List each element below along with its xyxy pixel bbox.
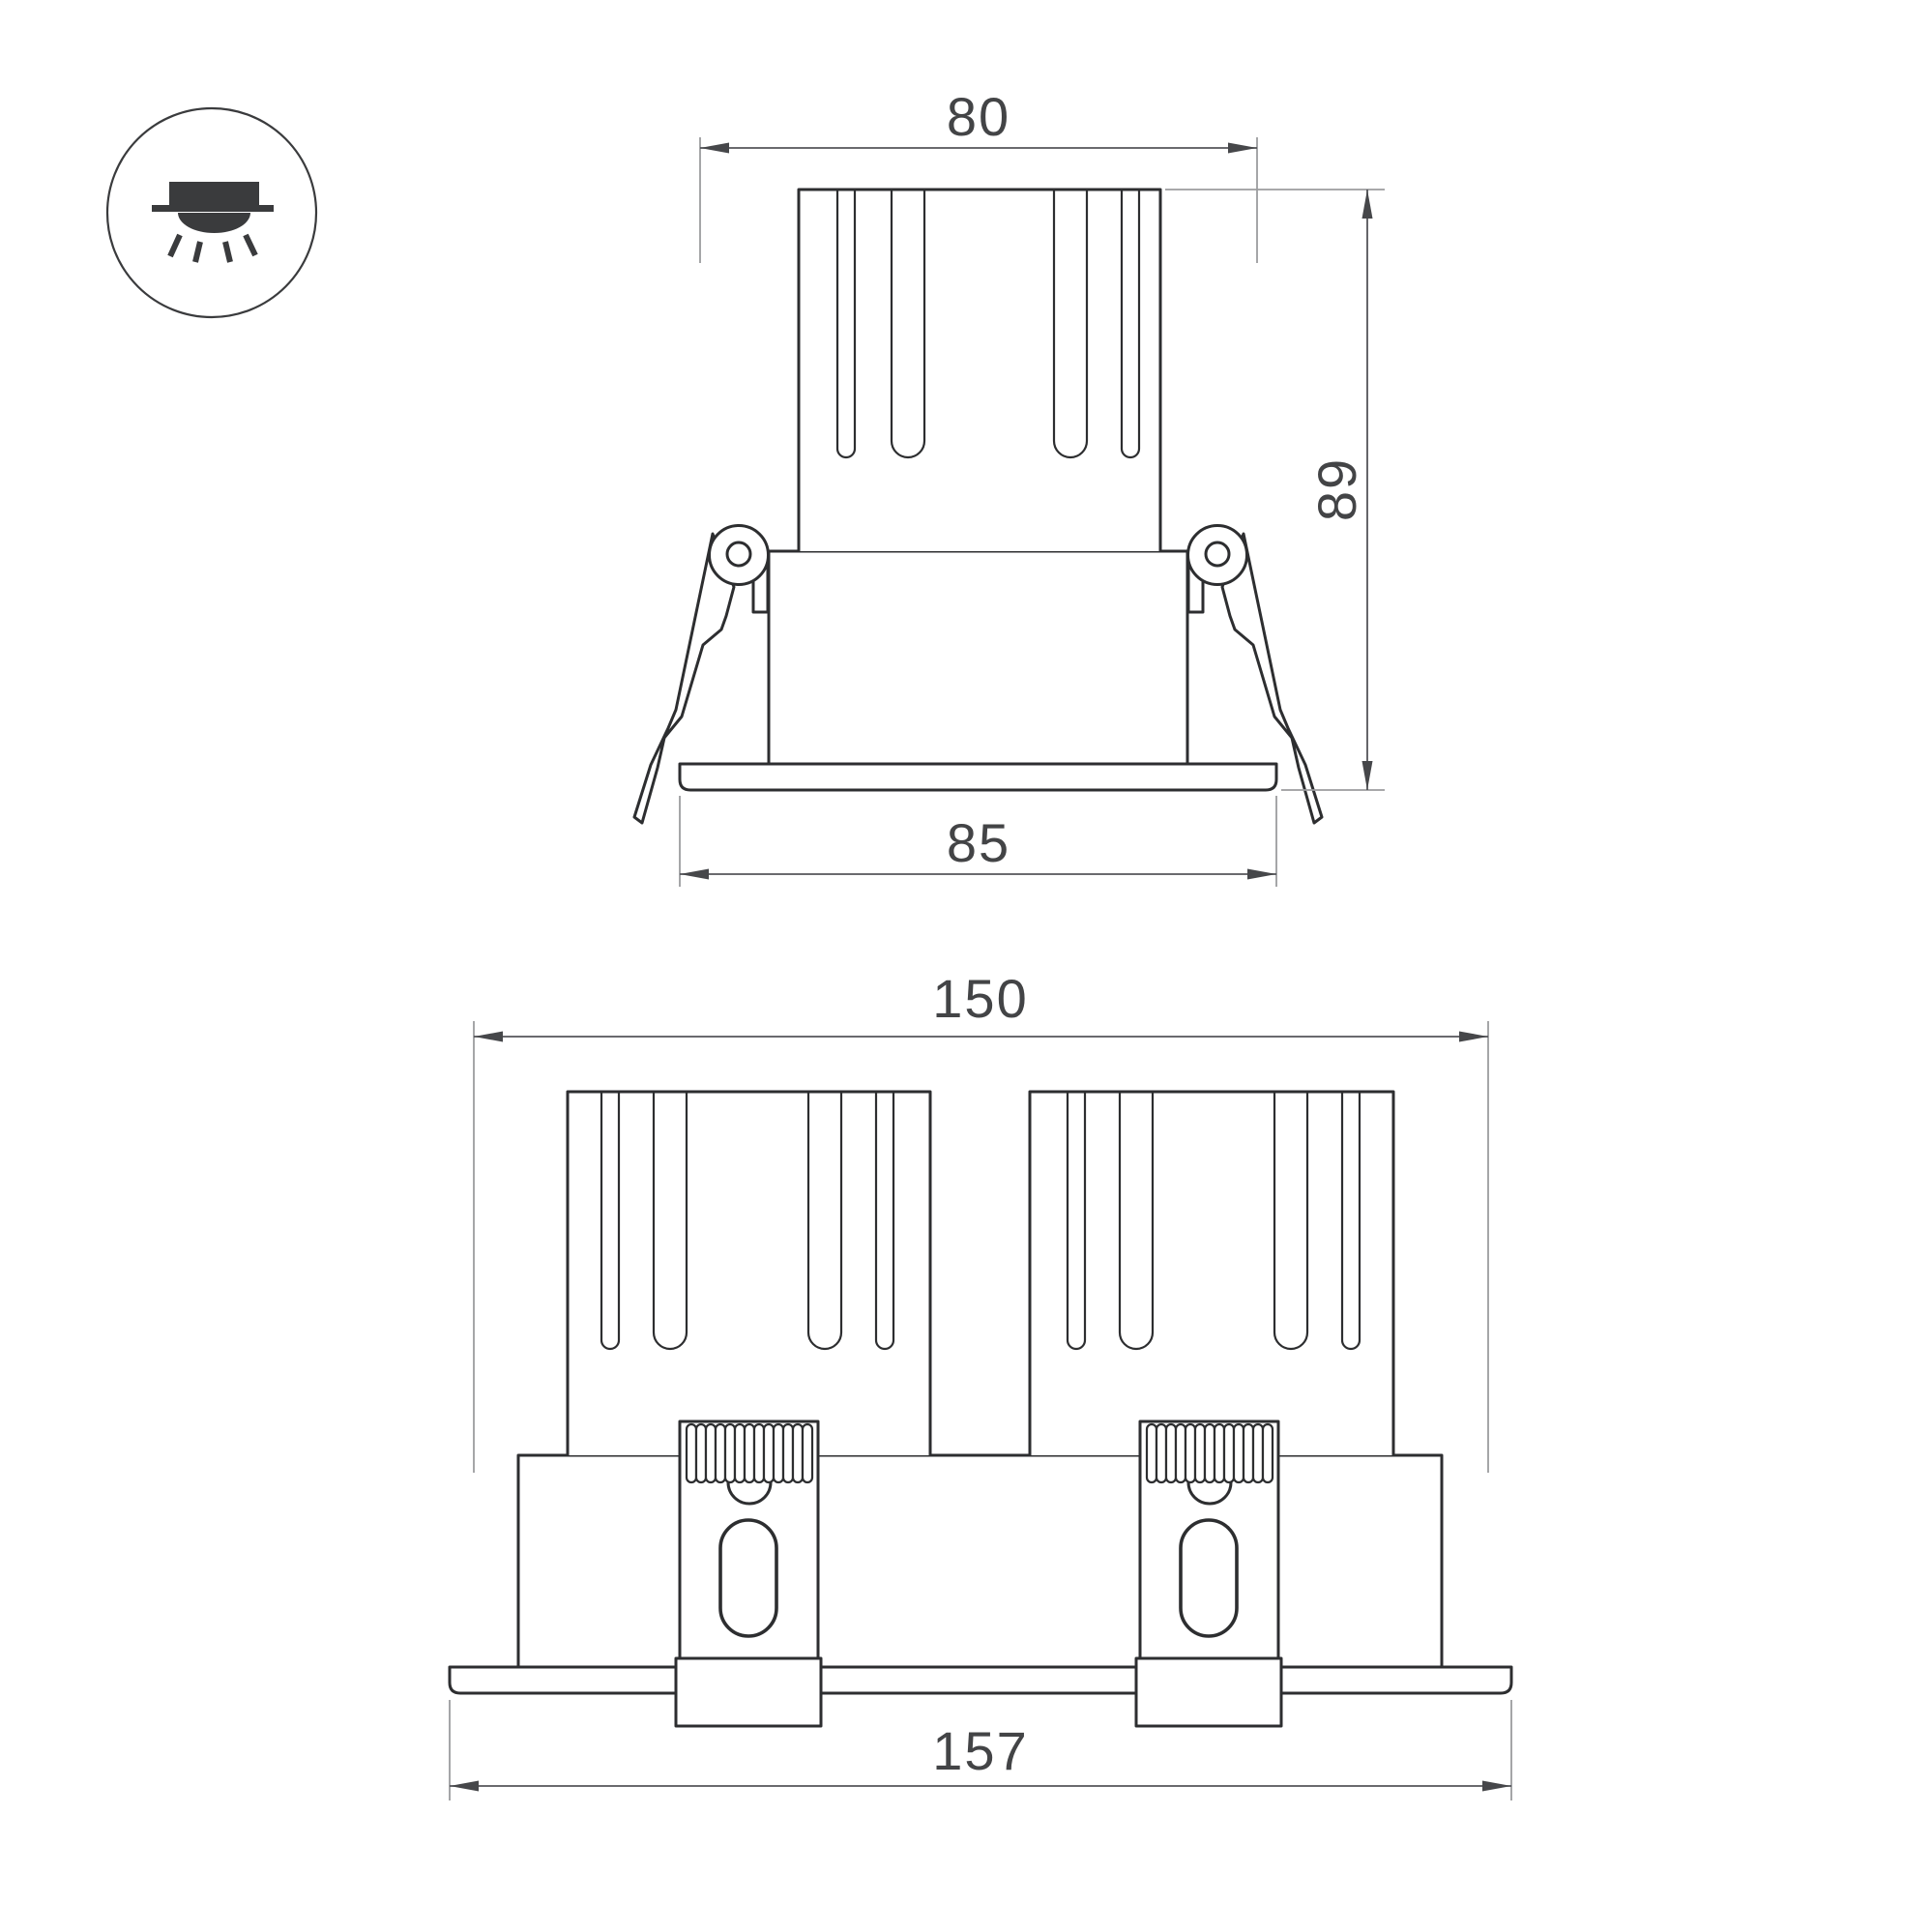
mount-bracket-left: [676, 1421, 821, 1726]
technical-drawing-canvas: 80 89 85: [0, 0, 1932, 1932]
single-heatsink: [799, 190, 1160, 551]
double-housing: [518, 1455, 1442, 1667]
double-heatsink-left: [568, 1092, 930, 1455]
double-heatsink-right: [1030, 1092, 1393, 1455]
icon-lamp-body: [169, 182, 259, 207]
dimension-label-80: 80: [947, 86, 1010, 147]
front-view-single-luminaire: 80 89 85: [634, 86, 1385, 887]
icon-flange-bar: [152, 205, 274, 212]
dimension-85: 85: [680, 796, 1276, 887]
front-view-double-luminaire: 150 157: [450, 968, 1511, 1800]
dimension-label-89: 89: [1306, 457, 1367, 521]
dimension-157: 157: [450, 1700, 1511, 1800]
icon-light-rays: [170, 235, 255, 262]
icon-light-dome: [178, 213, 250, 233]
dimension-label-85: 85: [947, 812, 1010, 873]
mount-bracket-right: [1136, 1421, 1281, 1726]
double-flange: [450, 1667, 1511, 1693]
downlight-icon: [107, 108, 316, 317]
dimension-label-150: 150: [932, 968, 1028, 1029]
single-housing: [769, 551, 1187, 764]
dimension-label-157: 157: [932, 1720, 1028, 1781]
single-flange: [680, 764, 1276, 790]
